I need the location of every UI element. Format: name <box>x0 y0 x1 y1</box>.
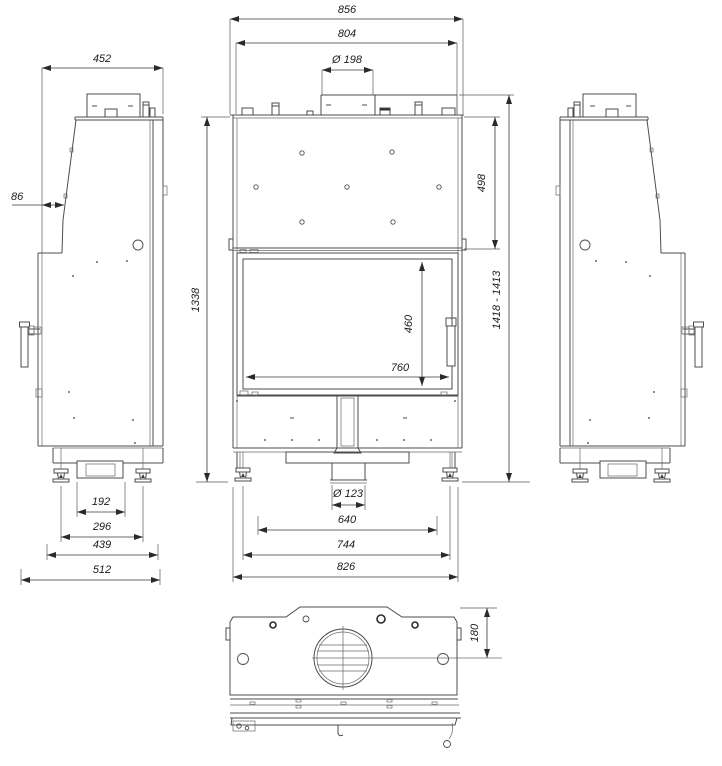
base-front-panel <box>236 396 456 453</box>
latch-hook <box>338 725 343 736</box>
dim-label-760: 760 <box>391 362 410 374</box>
dim-label-192: 192 <box>92 496 110 508</box>
dim-front-inner-spacing: 640 <box>258 514 437 535</box>
drawing-sheet: 452 86 192 296 439 <box>0 0 722 766</box>
left-side-view: 452 86 192 296 439 <box>11 53 167 585</box>
door-hinge <box>240 391 248 395</box>
dim-front-body-width: 804 <box>236 28 457 114</box>
dim-left-drawer-width: 192 <box>77 482 125 517</box>
dim-label-1418-1413: 1418 - 1413 <box>491 270 503 330</box>
boss-hole-left <box>238 654 249 665</box>
front-strip <box>230 699 461 718</box>
technical-drawing: 452 86 192 296 439 <box>0 0 722 766</box>
dim-left-feet-spacing: 296 <box>61 486 143 542</box>
boss-hole-right <box>438 654 449 665</box>
dim-label-439: 439 <box>93 539 111 551</box>
plinth <box>235 452 458 483</box>
dim-label-452: 452 <box>93 53 111 65</box>
dim-left-top-depth: 452 <box>42 53 163 253</box>
right-side-body <box>556 94 704 482</box>
air-inlet-outlet <box>332 463 365 480</box>
side-hinge-plate-left <box>229 239 233 250</box>
dim-label-86: 86 <box>11 191 24 203</box>
dim-label-744: 744 <box>337 539 355 551</box>
door-handle <box>447 326 455 366</box>
dim-label-512: 512 <box>93 564 111 576</box>
dim-front-body-height: 1338 <box>190 117 230 482</box>
center-channel <box>337 396 358 448</box>
upper-panel-holes <box>254 150 441 224</box>
dim-front-flue-diameter: Ø 198 <box>322 54 373 95</box>
dim-left-overall-depth: 512 <box>21 564 160 585</box>
dim-front-base-width: 826 <box>233 487 458 582</box>
top-connection-stubs <box>242 102 455 115</box>
dim-front-upper-section: 498 <box>464 117 500 249</box>
front-view: 856 804 Ø 198 1338 498 1418 - <box>190 4 530 582</box>
right-side-view <box>556 94 704 482</box>
dim-left-front-offset: 86 <box>11 191 64 205</box>
dim-front-glass-width: 760 <box>246 362 449 377</box>
side-hinge-plate-right <box>462 239 466 250</box>
dim-label-804: 804 <box>338 28 356 40</box>
door <box>237 253 458 395</box>
dim-label-498: 498 <box>476 173 488 192</box>
pull-ring <box>444 741 451 748</box>
dim-front-outlet-diameter: Ø 123 <box>332 485 365 510</box>
dim-label-outlet: Ø 123 <box>332 488 364 500</box>
base-tray <box>286 452 409 463</box>
dim-label-flue: Ø 198 <box>331 54 363 66</box>
dim-label-826: 826 <box>337 561 356 573</box>
dim-left-base-depth: 439 <box>47 539 158 560</box>
dim-label-180: 180 <box>469 623 481 642</box>
door-glass <box>243 259 452 389</box>
top-view: 180 <box>226 607 502 748</box>
dim-label-460: 460 <box>403 314 415 333</box>
dim-label-856: 856 <box>338 4 357 16</box>
left-side-body <box>20 94 168 482</box>
dim-label-640: 640 <box>338 514 357 526</box>
dim-label-1338: 1338 <box>190 287 202 312</box>
bottom-bar <box>231 718 457 748</box>
dim-label-296: 296 <box>92 521 112 533</box>
dim-front-overall-height: 1418 - 1413 <box>459 95 514 482</box>
dim-top-flue-offset: 180 <box>460 608 497 658</box>
